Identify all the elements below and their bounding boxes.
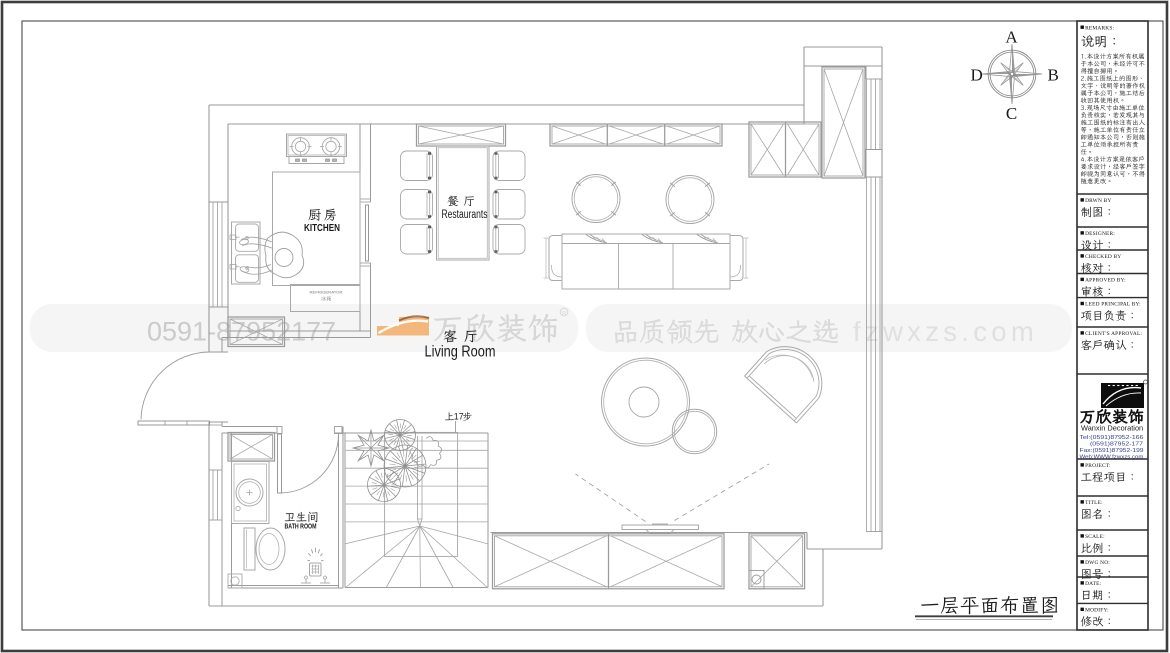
svg-text:DWG NO:: DWG NO: (1085, 560, 1110, 566)
svg-text:Wanxin Decoration: Wanxin Decoration (1081, 424, 1143, 433)
svg-text:LEED PRINCIPAL BY:: LEED PRINCIPAL BY: (1085, 302, 1141, 308)
svg-text:REFRIGERATOR: REFRIGERATOR (310, 290, 343, 295)
svg-text:Web:WWW.fzwxzs.com: Web:WWW.fzwxzs.com (1080, 454, 1144, 460)
svg-text:KITCHEN: KITCHEN (304, 223, 340, 234)
svg-text:Tel:(0591)87952-166: Tel:(0591)87952-166 (1080, 435, 1144, 441)
svg-text:Living Room: Living Room (425, 344, 496, 361)
svg-text:B: B (1048, 66, 1059, 85)
svg-text:DESIGNER:: DESIGNER: (1085, 231, 1115, 237)
svg-text:Restaurants: Restaurants (442, 209, 488, 221)
svg-text:C: C (1006, 104, 1017, 123)
svg-text:CHECKED BY: CHECKED BY (1085, 254, 1121, 260)
svg-text:R: R (562, 311, 566, 317)
svg-text:Fax:(0591)87952-199: Fax:(0591)87952-199 (1080, 448, 1144, 454)
svg-text:DATE:: DATE: (1085, 581, 1102, 587)
svg-text:PROJECT:: PROJECT: (1085, 463, 1111, 469)
svg-text:SCALE:: SCALE: (1085, 534, 1105, 540)
svg-text:17: 17 (454, 412, 464, 422)
svg-text:DRWN BY: DRWN BY (1085, 198, 1111, 204)
svg-text:CLIENT'S APPROVAL:: CLIENT'S APPROVAL: (1085, 331, 1142, 337)
svg-text:fzwxzs.com: fzwxzs.com (853, 316, 1038, 347)
svg-text:REMARKS:: REMARKS: (1085, 26, 1114, 32)
svg-text:D: D (971, 66, 983, 85)
svg-text:APPROVED BY:: APPROVED BY: (1085, 278, 1126, 284)
svg-text:TITLE:: TITLE: (1085, 500, 1103, 506)
svg-text:BATH ROOM: BATH ROOM (285, 521, 317, 530)
svg-text:A: A (1005, 28, 1018, 47)
svg-text:MODIFY:: MODIFY: (1085, 607, 1109, 613)
svg-text:(0591)87952-177: (0591)87952-177 (1090, 442, 1143, 448)
